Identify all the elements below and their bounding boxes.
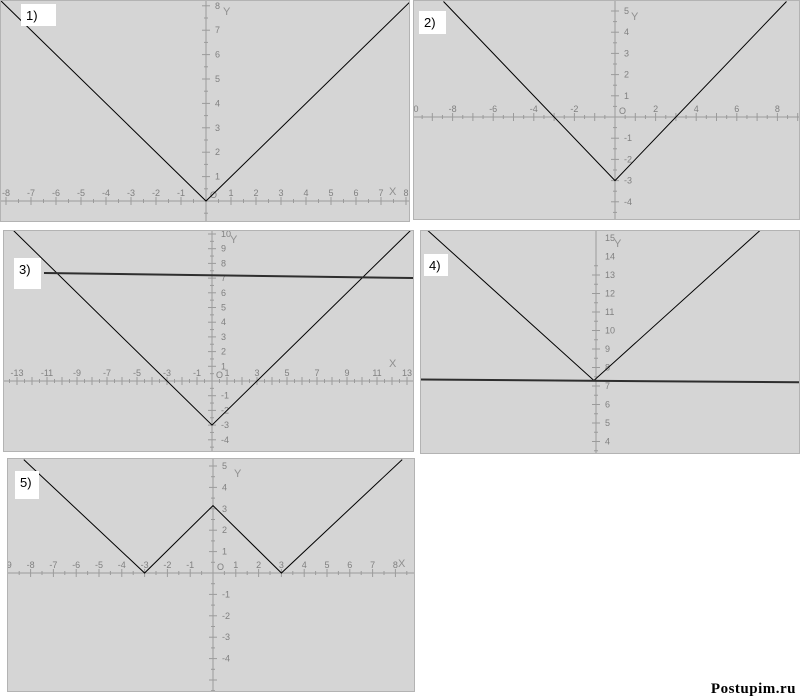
y-tick-label: -4	[221, 435, 229, 445]
y-tick-label: 3	[221, 332, 226, 342]
x-tick-label: -2	[163, 560, 171, 570]
y-tick-label: -4	[222, 654, 230, 664]
y-axis-letter: Y	[234, 468, 242, 480]
y-axis-letter: Y	[614, 238, 622, 250]
y-tick-label: 8	[221, 258, 226, 268]
x-tick-label: -1	[177, 188, 185, 198]
watermark: Postupim.ru	[711, 681, 796, 698]
horizontal-line	[421, 380, 800, 383]
y-axis-letter: Y	[631, 11, 639, 23]
y-tick-label: -3	[222, 632, 230, 642]
x-tick-label: -3	[163, 368, 171, 378]
y-tick-label: 9	[221, 244, 226, 254]
y-tick-label: 2	[215, 147, 220, 157]
y-tick-label: 5	[624, 6, 629, 16]
x-tick-label: 1	[228, 188, 233, 198]
y-tick-label: 5	[215, 74, 220, 84]
graph-svg-1: -8-7-6-5-4-3-2-11234567812345678OXY1)	[1, 1, 410, 222]
x-tick-label: 9	[344, 368, 349, 378]
x-tick-label: 5	[328, 188, 333, 198]
panel-number: 2)	[424, 15, 436, 30]
panel-number: 4)	[429, 258, 441, 273]
x-tick-label: -5	[133, 368, 141, 378]
x-tick-label: 11	[372, 368, 381, 378]
y-tick-label: -3	[624, 176, 632, 186]
x-axis-letter: X	[389, 358, 397, 370]
x-tick-label: 7	[314, 368, 319, 378]
graph-panel-5: -9-8-7-6-5-4-3-2-1123456789-4-3-2-112345…	[7, 458, 415, 692]
y-tick-label: -2	[222, 611, 230, 621]
x-axis-letter: X	[398, 558, 406, 570]
x-tick-label: -10	[414, 104, 419, 114]
x-tick-label: -3	[141, 560, 149, 570]
x-tick-label: 6	[734, 104, 739, 114]
x-tick-label: -5	[77, 188, 85, 198]
y-tick-label: 2	[222, 525, 227, 535]
x-tick-label: -6	[489, 104, 497, 114]
y-tick-label: 3	[222, 504, 227, 514]
y-tick-label: 4	[624, 27, 629, 37]
x-tick-label: -13	[10, 368, 23, 378]
y-tick-label: -1	[222, 589, 230, 599]
x-tick-label: -4	[118, 560, 126, 570]
x-tick-label: 2	[256, 560, 261, 570]
x-tick-label: 1	[233, 560, 238, 570]
y-tick-label: 4	[221, 317, 226, 327]
x-tick-label: -7	[27, 188, 35, 198]
y-tick-label: 4	[215, 98, 220, 108]
graphs-collage: Postupim.ru -8-7-6-5-4-3-2-1123456781234…	[0, 0, 800, 700]
x-tick-label: 2	[253, 188, 258, 198]
y-tick-label: 6	[221, 288, 226, 298]
x-tick-label: 8	[403, 188, 408, 198]
y-tick-label: -1	[221, 391, 229, 401]
y-tick-label: 11	[605, 307, 614, 317]
y-tick-label: 8	[215, 1, 220, 11]
x-tick-label: -2	[152, 188, 160, 198]
x-tick-label: 3	[278, 188, 283, 198]
x-tick-label: 5	[324, 560, 329, 570]
x-tick-label: 6	[353, 188, 358, 198]
y-tick-label: 14	[605, 252, 615, 262]
y-tick-label: 7	[605, 381, 610, 391]
x-tick-label: 3	[254, 368, 259, 378]
origin-label: O	[217, 562, 224, 572]
y-tick-label: 3	[215, 123, 220, 133]
x-tick-label: -1	[193, 368, 201, 378]
y-tick-label: 2	[221, 347, 226, 357]
y-tick-label: 13	[605, 270, 615, 280]
x-tick-label: -1	[186, 560, 194, 570]
x-tick-label: -6	[52, 188, 60, 198]
y-tick-label: 10	[605, 326, 615, 336]
horizontal-line	[44, 273, 414, 278]
panel-number: 5)	[20, 475, 32, 490]
graph-svg-5: -9-8-7-6-5-4-3-2-1123456789-4-3-2-112345…	[8, 459, 415, 692]
y-tick-label: 4	[222, 482, 227, 492]
y-tick-label: 4	[605, 437, 610, 447]
y-tick-label: 5	[605, 418, 610, 428]
y-axis-letter: Y	[223, 6, 231, 18]
graph-svg-4: 456789101112131415Y4)	[421, 231, 800, 454]
y-tick-label: -3	[221, 420, 229, 430]
y-tick-label: 8	[605, 363, 610, 373]
x-tick-label: -8	[27, 560, 35, 570]
y-tick-label: -1	[624, 133, 632, 143]
y-tick-label: 3	[624, 48, 629, 58]
graph-panel-4: 456789101112131415Y4)	[420, 230, 800, 454]
graph-svg-2: -10-8-6-4-22468-4-3-2-112345OY2)	[414, 1, 800, 220]
y-tick-label: 2	[624, 70, 629, 80]
graph-svg-3: -13-11-9-7-5-3-1135791113-4-3-2-11234567…	[4, 231, 414, 452]
y-tick-label: 9	[605, 344, 610, 354]
x-tick-label: -9	[73, 368, 81, 378]
x-tick-label: 7	[370, 560, 375, 570]
x-tick-label: 6	[347, 560, 352, 570]
origin-label: O	[216, 370, 223, 380]
x-tick-label: -2	[570, 104, 578, 114]
y-tick-label: 5	[222, 461, 227, 471]
x-tick-label: 3	[279, 560, 284, 570]
x-tick-label: -8	[2, 188, 10, 198]
y-tick-label: 1	[222, 547, 227, 557]
panel-number: 3)	[19, 262, 31, 277]
x-tick-label: -7	[103, 368, 111, 378]
panel-number: 1)	[26, 8, 38, 23]
graph-panel-1: -8-7-6-5-4-3-2-11234567812345678OXY1)	[0, 0, 410, 222]
x-tick-label: -5	[95, 560, 103, 570]
y-tick-label: 7	[215, 25, 220, 35]
y-tick-label: 6	[605, 400, 610, 410]
x-tick-label: 8	[775, 104, 780, 114]
x-axis-letter: X	[389, 186, 397, 198]
x-tick-label: 2	[653, 104, 658, 114]
y-tick-label: 1	[624, 91, 629, 101]
x-tick-label: 13	[402, 368, 412, 378]
x-tick-label: 4	[694, 104, 699, 114]
x-tick-label: 4	[303, 188, 308, 198]
x-tick-label: 5	[284, 368, 289, 378]
x-tick-label: -11	[41, 368, 53, 378]
x-tick-label: -4	[102, 188, 110, 198]
y-tick-label: 5	[221, 303, 226, 313]
y-axis-letter: Y	[230, 234, 238, 246]
x-tick-label: -8	[449, 104, 457, 114]
x-tick-label: -7	[49, 560, 57, 570]
x-tick-label: -3	[127, 188, 135, 198]
graph-panel-2: -10-8-6-4-22468-4-3-2-112345OY2)	[413, 0, 800, 220]
y-tick-label: -2	[624, 154, 632, 164]
x-tick-label: 7	[378, 188, 383, 198]
y-tick-label: -4	[624, 197, 632, 207]
x-tick-label: -9	[8, 560, 12, 570]
graph-panel-3: -13-11-9-7-5-3-1135791113-4-3-2-11234567…	[3, 230, 414, 452]
x-tick-label: -6	[72, 560, 80, 570]
x-tick-label: -4	[530, 104, 538, 114]
origin-label: O	[619, 106, 626, 116]
y-tick-label: 6	[215, 50, 220, 60]
y-tick-label: 12	[605, 289, 615, 299]
y-tick-label: 1	[215, 172, 220, 182]
x-tick-label: 4	[302, 560, 307, 570]
y-tick-label: -2	[221, 405, 229, 415]
